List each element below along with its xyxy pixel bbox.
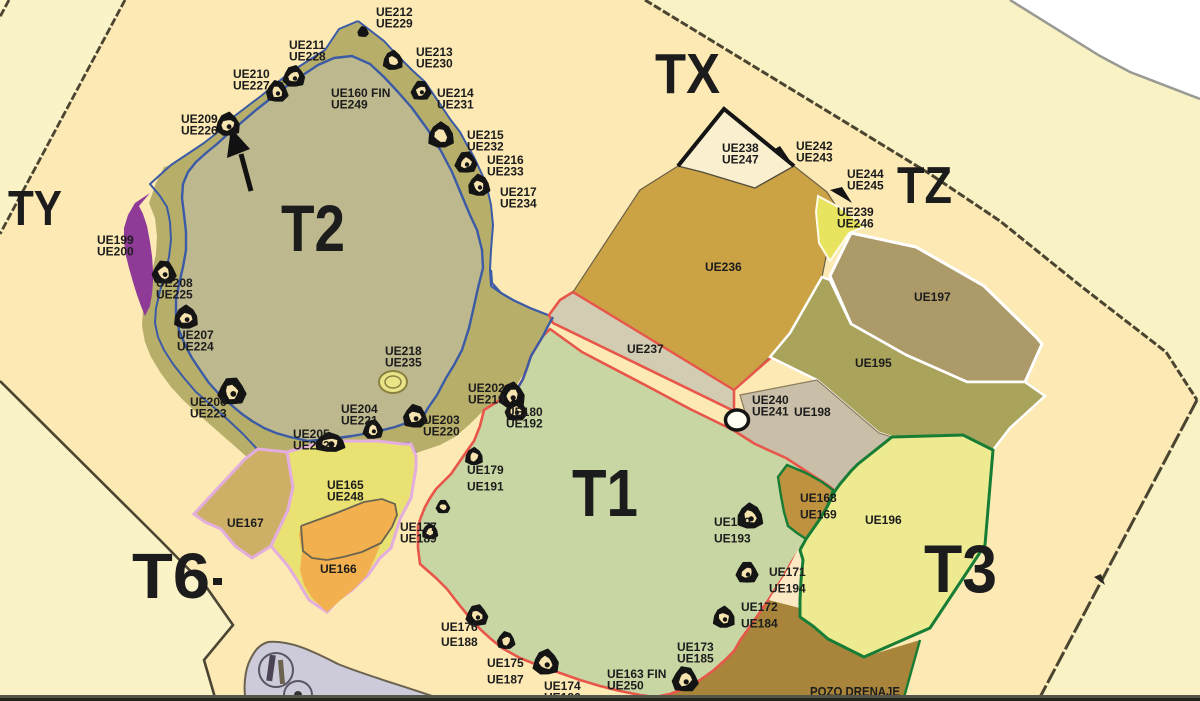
svg-text:UE246: UE246 xyxy=(837,217,874,231)
svg-text:UE235: UE235 xyxy=(385,356,422,370)
svg-text:UE225: UE225 xyxy=(156,288,193,302)
svg-text:UE243: UE243 xyxy=(796,151,833,165)
svg-text:UE191: UE191 xyxy=(467,480,504,494)
svg-text:UE237: UE237 xyxy=(627,342,664,356)
svg-text:T1: T1 xyxy=(572,456,638,531)
svg-text:UE227: UE227 xyxy=(233,79,270,93)
svg-text:UE168: UE168 xyxy=(800,491,837,505)
svg-text:T3: T3 xyxy=(924,531,997,607)
svg-text:UE226: UE226 xyxy=(181,124,218,138)
svg-text:UE248: UE248 xyxy=(327,490,364,504)
svg-text:UE195: UE195 xyxy=(855,356,892,370)
svg-text:UE184: UE184 xyxy=(741,617,778,631)
svg-text:UE179: UE179 xyxy=(467,463,504,477)
svg-text:UE167: UE167 xyxy=(227,516,264,530)
svg-text:UE231: UE231 xyxy=(437,98,474,112)
svg-text:UE194: UE194 xyxy=(769,582,806,596)
svg-text:UE176: UE176 xyxy=(441,620,478,634)
svg-text:TX: TX xyxy=(655,42,720,106)
svg-text:UE236: UE236 xyxy=(705,260,742,274)
svg-text:UE222: UE222 xyxy=(293,439,330,453)
svg-text:UE200: UE200 xyxy=(97,245,134,259)
svg-text:UE224: UE224 xyxy=(177,340,214,354)
svg-text:UE187: UE187 xyxy=(487,673,524,687)
svg-text:UE169: UE169 xyxy=(800,508,837,522)
svg-text:UE197: UE197 xyxy=(914,290,951,304)
svg-text:T2: T2 xyxy=(281,191,345,265)
svg-text:UE250: UE250 xyxy=(607,679,644,693)
svg-text:UE189: UE189 xyxy=(400,532,437,546)
svg-text:UE171: UE171 xyxy=(769,565,806,579)
svg-text:UE219: UE219 xyxy=(468,393,505,407)
svg-text:UE175: UE175 xyxy=(487,656,524,670)
svg-text:TZ: TZ xyxy=(897,157,952,215)
svg-text:UE233: UE233 xyxy=(487,165,524,179)
svg-text:UE188: UE188 xyxy=(441,635,478,649)
svg-text:UE220: UE220 xyxy=(423,425,460,439)
svg-text:UE230: UE230 xyxy=(416,57,453,71)
svg-text:UE192: UE192 xyxy=(506,417,543,431)
svg-text:UE232: UE232 xyxy=(467,140,504,154)
svg-text:UE229: UE229 xyxy=(376,17,413,31)
svg-text:UE249: UE249 xyxy=(331,98,368,112)
svg-text:T6: T6 xyxy=(132,540,210,612)
svg-text:UE196: UE196 xyxy=(865,513,902,527)
svg-text:UE198: UE198 xyxy=(794,405,831,419)
svg-text:UE228: UE228 xyxy=(289,50,326,64)
svg-text:UE193: UE193 xyxy=(714,532,751,546)
svg-text:UE247: UE247 xyxy=(722,153,759,167)
svg-text:UE221: UE221 xyxy=(341,414,378,428)
svg-text:UE166: UE166 xyxy=(320,562,357,576)
svg-text:UE234: UE234 xyxy=(500,197,537,211)
svg-text:TY: TY xyxy=(8,182,62,236)
svg-text:UE172: UE172 xyxy=(741,600,778,614)
svg-text:UE245: UE245 xyxy=(847,179,884,193)
svg-text:UE223: UE223 xyxy=(190,407,227,421)
svg-text:UE185: UE185 xyxy=(677,652,714,666)
svg-text:UE170: UE170 xyxy=(714,515,751,529)
svg-text:UE241: UE241 xyxy=(752,405,789,419)
